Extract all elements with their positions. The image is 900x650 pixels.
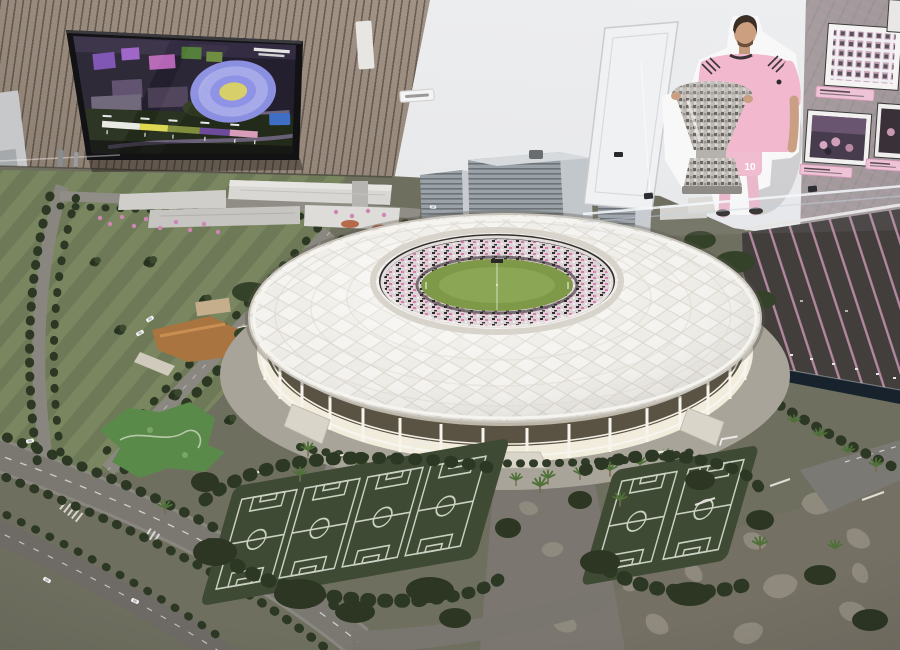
player-cutout: 10 (662, 15, 802, 217)
jersey-crest (777, 80, 782, 85)
glass-clamp (644, 193, 653, 200)
stadium-bowl (373, 230, 621, 332)
glass-clamp (808, 186, 817, 193)
jersey-number: 10 (744, 162, 756, 173)
frame-partial-top (887, 0, 900, 32)
wall-sign (400, 89, 435, 102)
tv-display (66, 30, 310, 172)
wall-plate (355, 21, 374, 70)
showroom-photo: 10 (0, 0, 900, 650)
glass-bracket (73, 152, 78, 167)
wall-sensor (529, 150, 543, 159)
glass-bracket (57, 150, 63, 167)
door-handle (614, 152, 623, 157)
model-artwork: 10 (0, 0, 900, 650)
tv-legend-badge (269, 113, 290, 125)
